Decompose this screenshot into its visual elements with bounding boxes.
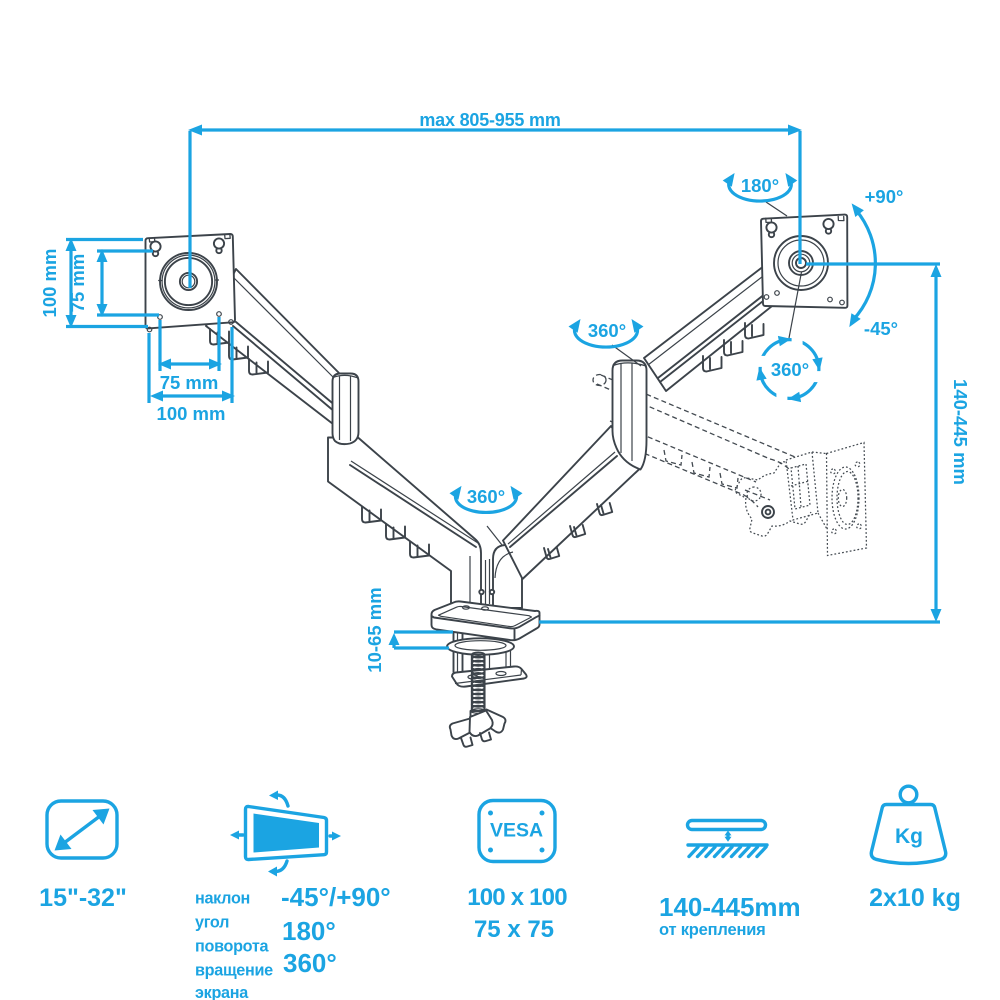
svg-text:140-445 mm: 140-445 mm bbox=[950, 379, 971, 485]
svg-text:140-445mm: 140-445mm bbox=[659, 892, 801, 922]
svg-text:360°: 360° bbox=[588, 320, 626, 341]
svg-text:-45°: -45° bbox=[864, 318, 898, 339]
svg-text:100 mm: 100 mm bbox=[39, 249, 60, 318]
svg-text:10-65 mm: 10-65 mm bbox=[364, 587, 385, 672]
svg-text:100 mm: 100 mm bbox=[157, 403, 226, 424]
svg-text:360°: 360° bbox=[467, 486, 505, 507]
svg-text:2x10 kg: 2x10 kg bbox=[869, 884, 961, 912]
svg-text:max 805-955 mm: max 805-955 mm bbox=[419, 110, 560, 130]
svg-text:180°: 180° bbox=[741, 175, 779, 196]
svg-text:экрана: экрана bbox=[195, 984, 249, 1000]
svg-text:100 x 100: 100 x 100 bbox=[467, 884, 567, 911]
svg-text:наклон: наклон bbox=[195, 890, 250, 908]
svg-text:Kg: Kg bbox=[895, 825, 923, 848]
svg-text:от крепления: от крепления bbox=[659, 921, 766, 939]
svg-text:поворота: поворота bbox=[195, 938, 269, 956]
svg-text:360°: 360° bbox=[283, 948, 337, 978]
svg-text:угол: угол bbox=[195, 914, 229, 932]
svg-text:75 mm: 75 mm bbox=[67, 254, 88, 313]
svg-text:VESA: VESA bbox=[490, 820, 543, 842]
svg-text:+90°: +90° bbox=[865, 186, 904, 207]
svg-text:вращение: вращение bbox=[195, 962, 273, 980]
svg-text:360°: 360° bbox=[771, 359, 809, 380]
svg-text:-45°/+90°: -45°/+90° bbox=[281, 882, 391, 912]
svg-text:75 x 75: 75 x 75 bbox=[474, 916, 554, 943]
svg-text:180°: 180° bbox=[282, 916, 336, 946]
svg-text:75 mm: 75 mm bbox=[160, 372, 219, 393]
svg-text:15"-32": 15"-32" bbox=[39, 884, 127, 912]
